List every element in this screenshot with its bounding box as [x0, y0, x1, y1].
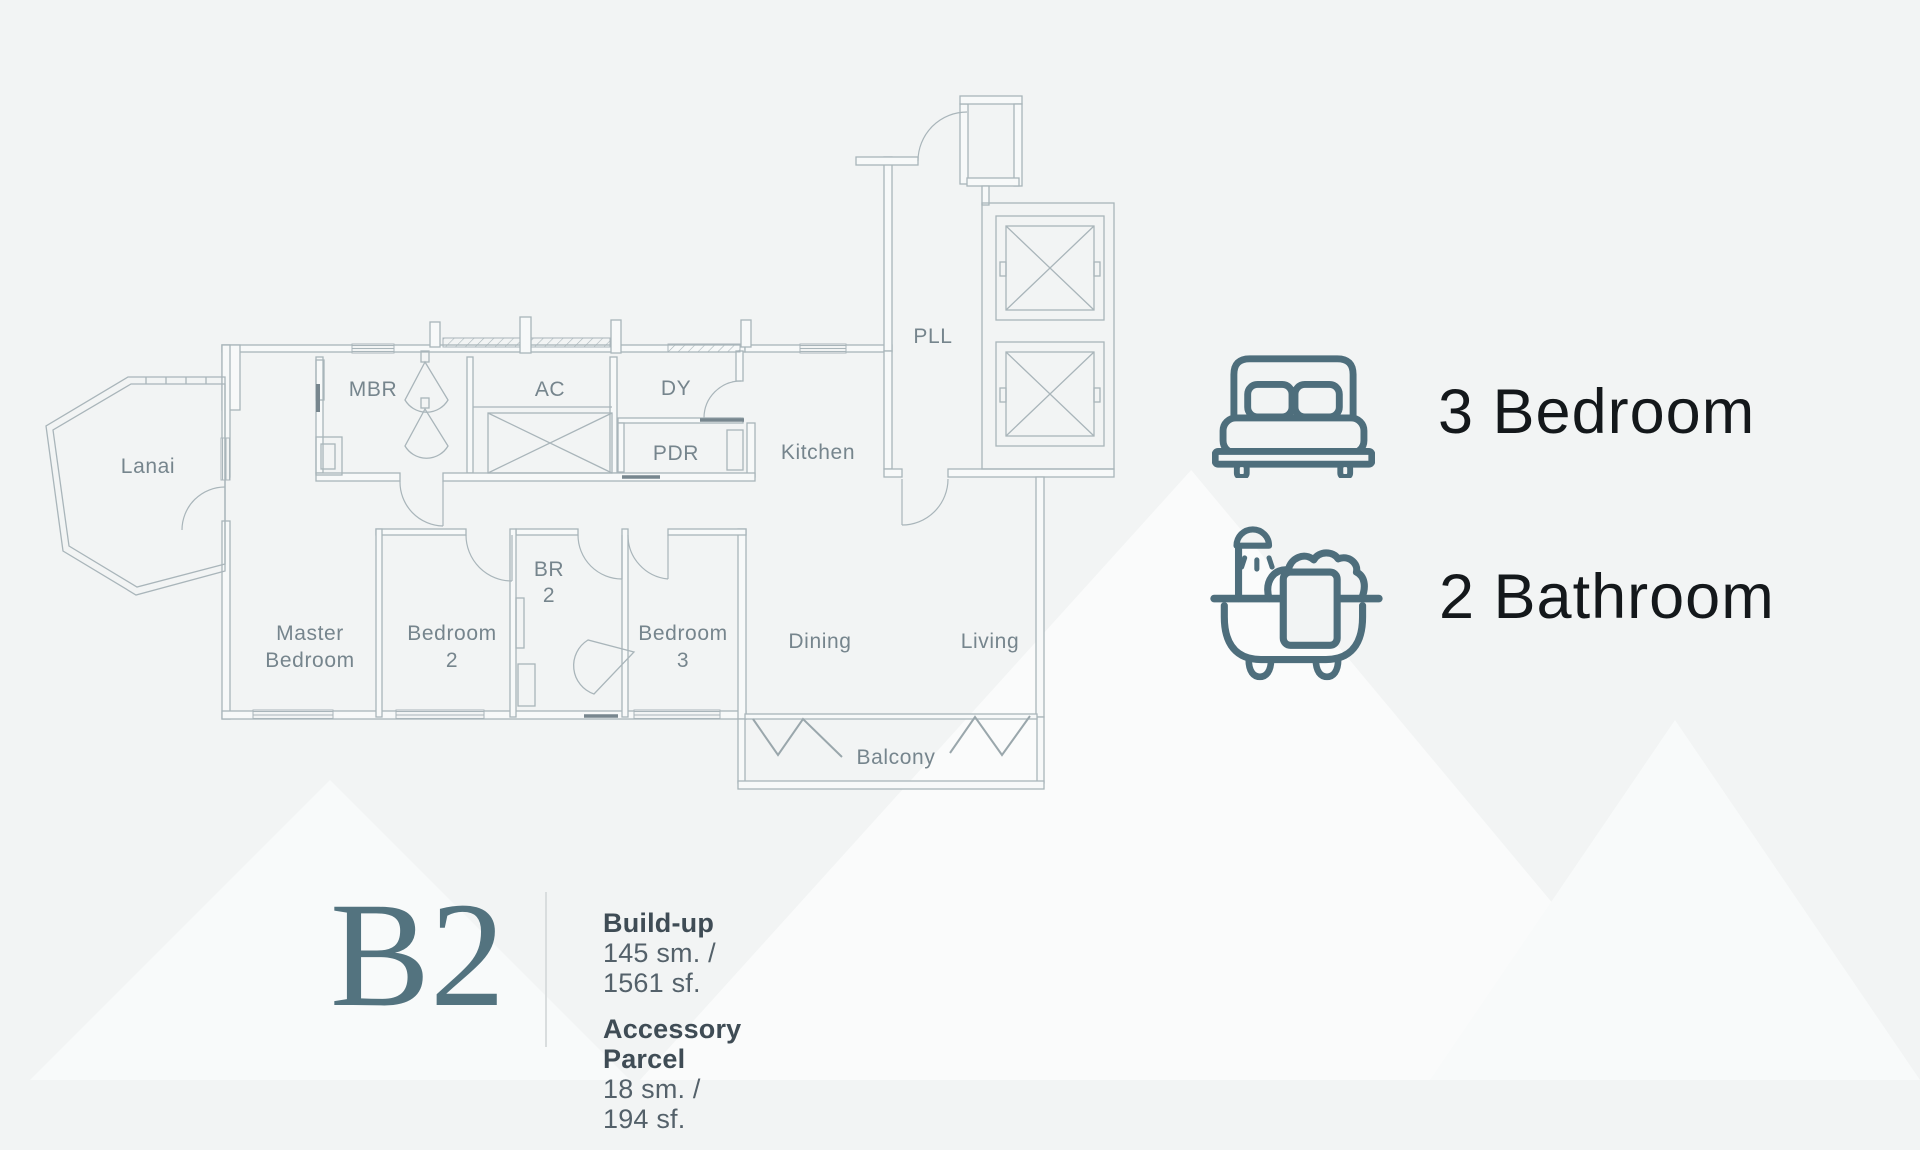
- room-label-dy: DY: [661, 377, 691, 400]
- elevator-shafts: [982, 203, 1114, 469]
- bedroom-count-label: 3 Bedroom: [1438, 376, 1755, 448]
- room-label-bedroom-3: 3: [677, 649, 689, 672]
- legend-bathrooms: 2 Bathroom: [1208, 505, 1775, 688]
- room-label-ac: AC: [535, 378, 565, 401]
- build-up-detail: Build-up 145 sm. / 1561 sf.: [603, 908, 741, 998]
- room-label-mbr: MBR: [349, 378, 397, 401]
- room-label-pdr: PDR: [653, 442, 699, 465]
- room-label-pll: PLL: [913, 325, 952, 348]
- room-label-master-bedroom: Bedroom: [265, 649, 354, 672]
- bed-icon: [1212, 345, 1375, 478]
- accessory-parcel-value: 18 sm. / 194 sf.: [603, 1074, 741, 1134]
- accessory-parcel-title: Accessory Parcel: [603, 1014, 741, 1074]
- bathroom-count-label: 2 Bathroom: [1439, 561, 1775, 633]
- page: Lanai MBR AC DY PDR Kitchen PLL Master B…: [0, 0, 1920, 1080]
- divider: [545, 892, 547, 1047]
- room-label-bedroom-2: Bedroom: [407, 622, 496, 645]
- accessory-parcel-detail: Accessory Parcel 18 sm. / 194 sf.: [603, 1014, 741, 1134]
- unit-code: B2: [330, 880, 500, 1030]
- unit-details: Build-up 145 sm. / 1561 sf. Accessory Pa…: [603, 908, 741, 1150]
- legend-bedrooms: 3 Bedroom: [1212, 345, 1755, 478]
- room-label-br-2: 2: [543, 584, 555, 607]
- room-label-bedroom-3: Bedroom: [638, 622, 727, 645]
- room-label-kitchen: Kitchen: [781, 441, 855, 464]
- room-label-living: Living: [961, 630, 1019, 653]
- lanai-terrace: [46, 377, 225, 595]
- room-label-balcony: Balcony: [857, 746, 936, 769]
- room-label-master-bedroom: Master: [276, 622, 344, 645]
- room-label-lanai: Lanai: [121, 455, 175, 478]
- bathtub-icon: [1208, 505, 1386, 688]
- room-label-bedroom-2: 2: [446, 649, 458, 672]
- room-label-dining: Dining: [788, 630, 851, 653]
- ac-shaft: [473, 407, 612, 473]
- build-up-title: Build-up: [603, 908, 741, 938]
- room-label-br-2: BR: [534, 558, 564, 581]
- build-up-value: 145 sm. / 1561 sf.: [603, 938, 741, 998]
